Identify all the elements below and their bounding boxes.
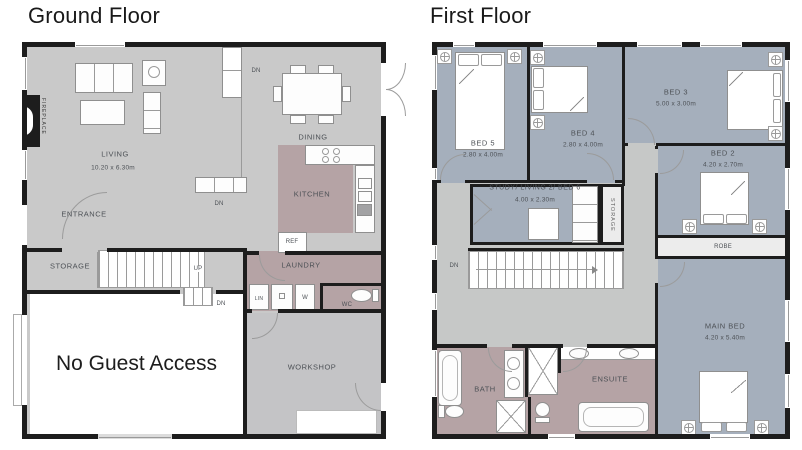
stairs-down-garage [183,287,213,306]
wall [216,290,244,294]
stove-burner [333,156,340,163]
wall [656,143,785,146]
kitchen-label: KITCHEN [294,190,330,199]
window [785,374,790,408]
living-dims: 10.20 x 6.30m [91,165,135,172]
pillow [701,422,722,432]
bed5-bed [455,52,505,150]
dn-label: DN [251,68,260,74]
study-label: STUDY/ LIVING 2/ BED 6 [489,185,581,192]
wall [107,248,244,252]
laundry-label: LAUNDRY [281,261,320,270]
dn-label: DN [449,263,458,269]
wall [320,283,323,313]
window [432,245,437,260]
bed-fold [459,69,474,84]
pillow [726,214,747,224]
dining-chair [342,86,351,102]
bath-label: BATH [474,385,495,394]
pillow [458,54,479,66]
storage-label: STORAGE [50,262,90,271]
stair-arrow-line [476,269,594,270]
bed4-label: BED 4 [571,129,595,138]
wall [525,347,528,397]
bed4-dims: 2.80 x 4.00m [563,142,603,149]
window [543,42,597,47]
wall [437,180,441,183]
armchair-cushion [148,66,160,78]
main-bed-label: MAIN BED [705,322,745,331]
workshop-label: WORKSHOP [288,363,337,372]
bathtub-inner [442,355,458,401]
ceiling-light-icon [530,50,545,65]
bed-fold [731,181,745,195]
fireplace-label: FIREPLACE [40,98,46,146]
bed3-dims: 5.00 x 3.00m [656,101,696,108]
entrance-door-opening [22,205,27,245]
bed-fold [570,97,584,111]
wall [655,283,658,435]
stair-arrow-head [592,266,598,274]
bed5-label: BED 5 [471,139,495,148]
stairs-down [468,251,624,289]
fridge-label: REF [286,239,299,245]
bed3-label: BED 3 [664,88,688,97]
garage-door [98,434,172,439]
bed5-dims: 2.80 x 4.00m [463,152,503,159]
wall [587,344,655,348]
window [22,57,27,90]
stair-void-line [223,70,241,71]
wall [622,47,625,186]
study-table [528,208,559,240]
basin [507,377,520,390]
stove-burner [322,148,329,155]
window [75,42,125,47]
window [22,150,27,180]
wall [658,235,785,238]
toilet-tank [535,417,550,423]
stair-railing [241,98,242,178]
toilet-tank [438,405,445,418]
stair-divider [97,252,98,288]
main-bed-bed [699,371,748,423]
ceiling-light-icon [530,115,545,130]
window [637,42,682,47]
ensuite-label: ENSUITE [592,375,628,384]
dn-label: DN [216,301,225,307]
dining-chair [273,86,282,102]
ceiling-light-icon [768,126,783,141]
study-couch [572,186,598,243]
dining-chair [318,115,334,124]
bed-fold [731,380,746,393]
toilet-bowl [445,405,464,418]
workshop-alcove [296,410,377,434]
living-label: LIVING [101,150,129,159]
wall [243,248,247,439]
french-door-leaf [386,89,406,116]
ceiling-light-icon [681,420,696,435]
workshop-door-opening [381,383,386,411]
ground-floor-plan: FIREPLACE [22,42,386,439]
ceiling-light-icon [768,52,783,67]
first-floor-plan: STORAGE [432,42,790,439]
window [785,60,790,102]
pillow [773,99,781,123]
ceiling-light-icon [754,420,769,435]
shower [496,400,526,433]
kitchen-drawer [358,191,372,202]
window [548,434,575,439]
kitchen-drawer [358,178,372,189]
stove-burner [322,156,329,163]
chaise [143,92,161,134]
wall [558,347,561,373]
wall [22,290,180,294]
wc-toilet-tank [372,289,379,302]
wall [247,251,259,255]
bed2-dims: 4.20 x 2.70m [703,162,743,169]
ceiling-light-icon [507,49,522,64]
dining-table [282,73,342,115]
ceiling-light-icon [752,219,767,234]
pillow [533,90,544,110]
exterior-wall [22,434,386,439]
ground-floor-title: Ground Floor [28,3,160,29]
wall [615,180,625,183]
wall [320,283,381,286]
french-door-leaf [386,63,406,90]
linen-label: LIN [255,296,263,302]
ensuite-bathtub-inner [583,407,644,427]
basin [619,348,639,359]
dining-chair [290,65,306,74]
pillow [533,68,544,88]
step-down-ledge [195,177,247,193]
washer-label: W [302,295,308,301]
study-dims: 4.00 x 2.30m [515,197,555,204]
pillow [773,73,781,97]
window [785,300,790,342]
window [710,434,750,439]
wall [468,248,624,251]
entrance-label: ENTRANCE [61,210,106,219]
storage-label: STORAGE [609,198,615,232]
window [700,42,742,47]
robe-label: ROBE [714,244,732,250]
floor-plan-image: Ground Floor First Floor FIREPLACE [0,0,802,450]
wall [435,344,487,348]
ceiling-light-icon [682,219,697,234]
wall [528,397,531,435]
bed-fold [729,72,743,86]
bed2-label: BED 2 [711,149,735,158]
wall [285,251,381,255]
garage-door-panel [13,314,22,406]
wall [655,146,658,149]
pillow [703,214,724,224]
stove-burner [333,148,340,155]
dn-label: DN [214,201,223,207]
washing-machine-dial [279,293,285,299]
window [432,350,437,397]
first-floor-title: First Floor [430,3,531,29]
dining-label: DINING [298,133,327,142]
wall [658,256,785,259]
wall [22,248,62,252]
no-guest-access-note: No Guest Access [30,352,243,376]
main-bed-dims: 4.20 x 5.40m [705,335,745,342]
stair-void [222,47,242,98]
dining-chair [290,115,306,124]
ceiling-light-icon [437,49,452,64]
wall [465,180,587,183]
window [432,168,437,180]
pillow [726,422,747,432]
kitchen-sink [357,204,372,216]
sofa [75,63,133,93]
storage-room: STORAGE [600,184,624,245]
window [432,55,437,90]
window [785,168,790,210]
pillow [481,54,502,66]
wall [278,309,381,313]
garage-side-door-opening [22,315,27,405]
stairs-up [98,250,205,288]
kitchen-counter [305,145,375,165]
shower [528,347,558,395]
coffee-table [80,100,125,125]
wall [512,344,563,348]
wc-toilet-bowl [351,289,372,302]
up-label: UP [193,266,204,272]
window [453,42,475,47]
wall [527,47,530,180]
window [432,293,437,310]
wall [655,173,658,259]
dining-chair [318,65,334,74]
toilet-bowl [535,402,550,417]
wc-label: WC [342,302,352,308]
